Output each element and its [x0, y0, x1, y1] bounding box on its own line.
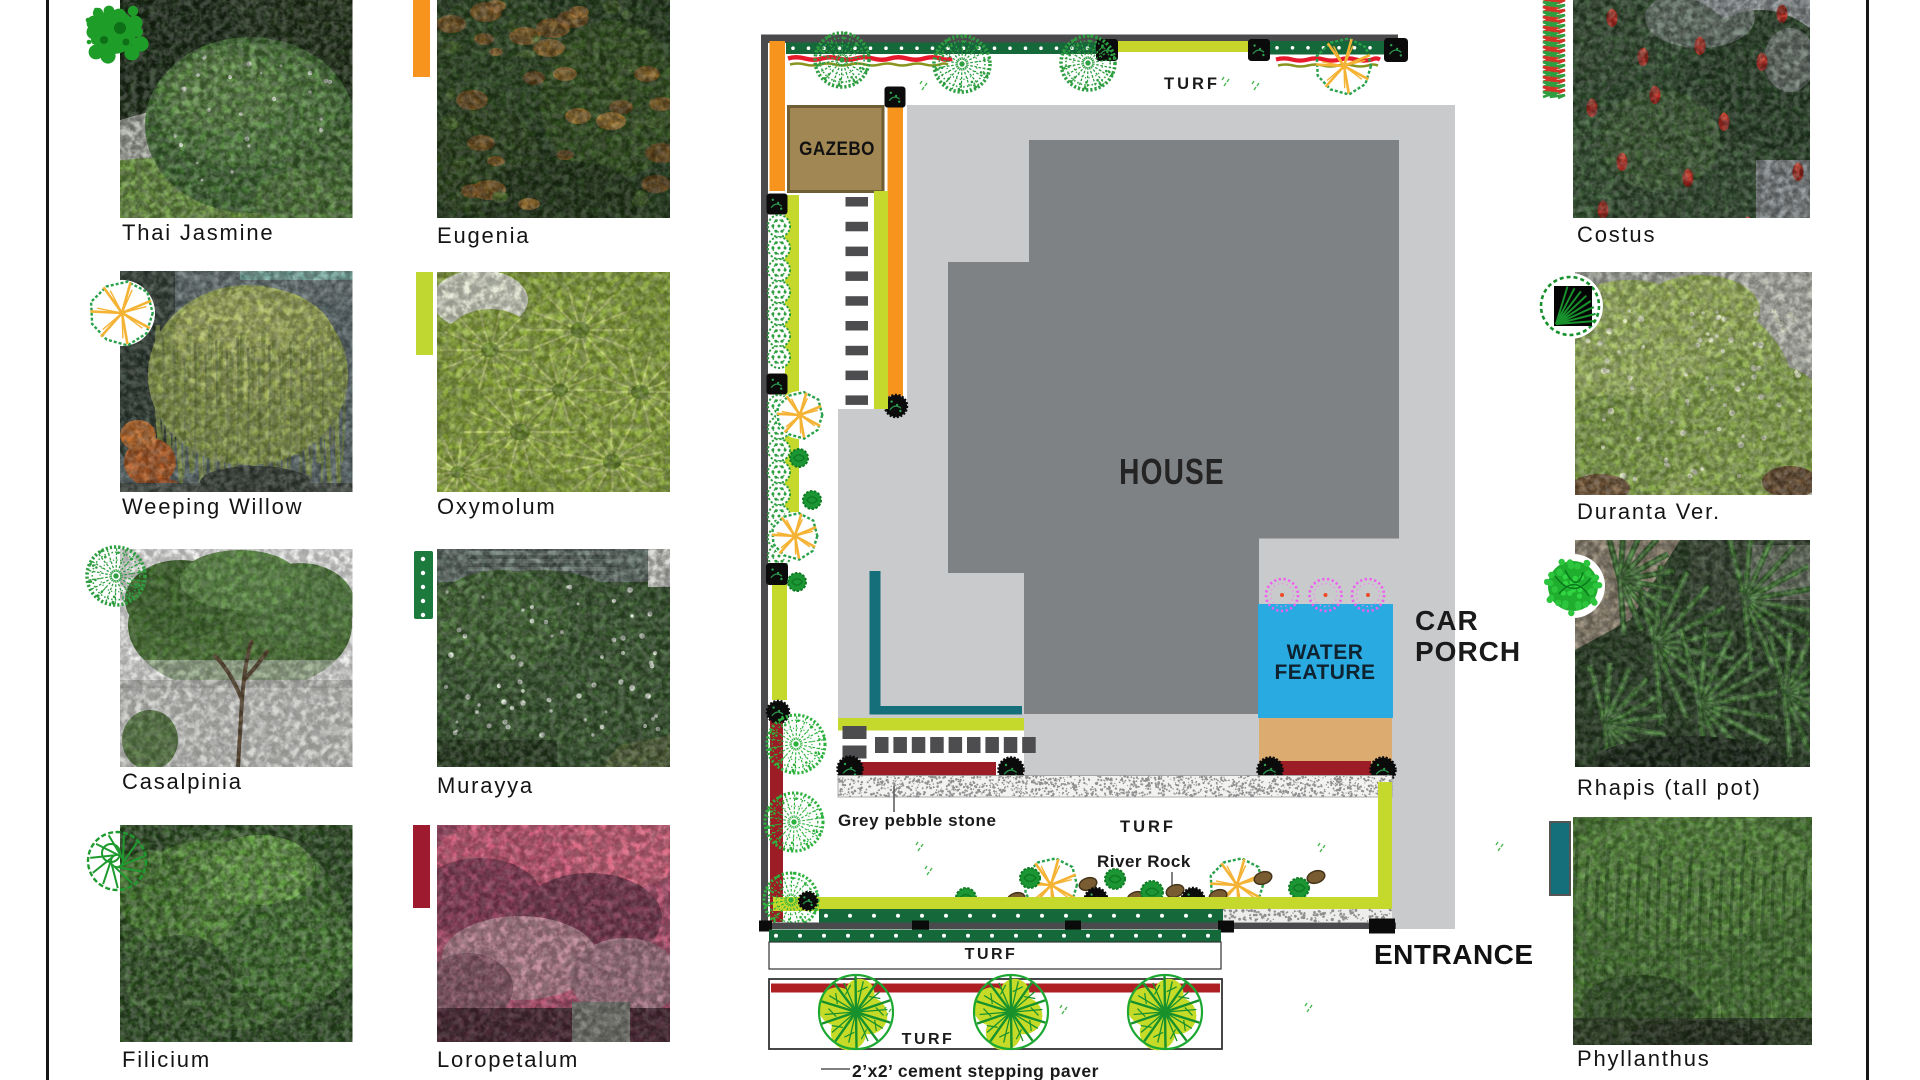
svg-text:PORCH: PORCH [1415, 636, 1521, 667]
svg-text:Thai Jasmine: Thai Jasmine [122, 220, 274, 245]
svg-text:Weeping Willow: Weeping Willow [122, 494, 303, 519]
svg-text:Murayya: Murayya [437, 773, 534, 798]
svg-text:Phyllanthus: Phyllanthus [1577, 1046, 1711, 1071]
svg-text:GAZEBO: GAZEBO [799, 138, 875, 159]
svg-text:ENTRANCE: ENTRANCE [1374, 939, 1534, 970]
svg-text:CAR: CAR [1415, 605, 1479, 636]
svg-text:2’x2’ cement stepping paver: 2’x2’ cement stepping paver [852, 1061, 1099, 1080]
svg-text:Loropetalum: Loropetalum [437, 1047, 579, 1072]
svg-text:FEATURE: FEATURE [1274, 661, 1375, 684]
svg-text:Rhapis (tall pot): Rhapis (tall pot) [1577, 775, 1762, 800]
svg-text:HOUSE: HOUSE [1119, 452, 1225, 492]
svg-text:Grey pebble stone: Grey pebble stone [838, 811, 997, 830]
svg-text:River Rock: River Rock [1097, 852, 1191, 871]
svg-text:Filicium: Filicium [122, 1047, 211, 1072]
svg-text:TURF: TURF [902, 1031, 955, 1048]
svg-text:TURF: TURF [1120, 818, 1176, 836]
svg-text:Oxymolum: Oxymolum [437, 494, 557, 519]
svg-text:Eugenia: Eugenia [437, 223, 530, 248]
svg-text:TURF: TURF [965, 946, 1018, 963]
svg-text:TURF: TURF [1164, 75, 1220, 93]
svg-text:Costus: Costus [1577, 222, 1656, 247]
svg-text:Casalpinia: Casalpinia [122, 769, 243, 794]
svg-text:Duranta Ver.: Duranta Ver. [1577, 499, 1721, 524]
